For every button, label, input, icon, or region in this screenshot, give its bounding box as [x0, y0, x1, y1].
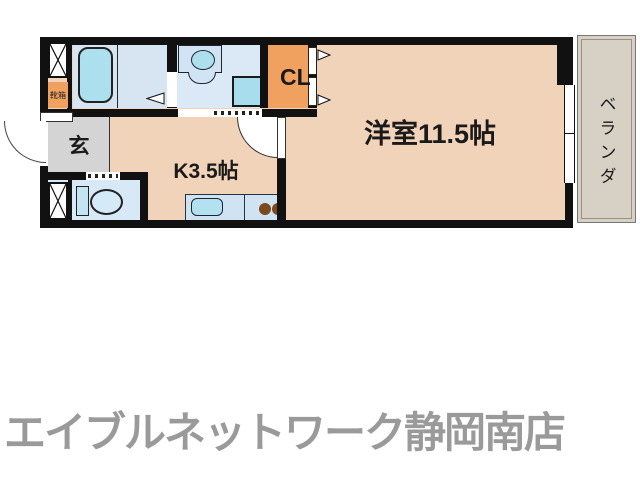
- footer-brand: エイブルネットワーク静岡南店: [4, 399, 636, 460]
- bathroom-divider-line: [117, 45, 118, 108]
- toilet-bowl-icon: [90, 189, 123, 215]
- pipe-space-icon: [48, 42, 68, 78]
- kitchen-sink-icon: [191, 198, 223, 216]
- wall-toilet-right: [140, 180, 148, 220]
- wall-top: [40, 37, 573, 45]
- wall-corner-top-right: [557, 38, 573, 85]
- closet-label-text: CL: [280, 64, 296, 90]
- closet-label: CL: [270, 50, 306, 104]
- window-center-tick: [564, 133, 575, 134]
- wall-washroom-closet: [260, 45, 268, 108]
- folding-door-arrow-icon: [317, 94, 331, 106]
- folding-door-arrow-icon: [317, 49, 331, 61]
- floor-plan-image: 靴箱 洋室11.5帖 K3.5帖 玄 CL ベランダ エイブルネットワーク静岡南…: [0, 0, 640, 480]
- wall-bottom: [40, 220, 573, 228]
- shoe-box: 靴箱: [48, 82, 68, 108]
- stove-burner-icon: [259, 203, 271, 215]
- veranda-label: ベランダ: [593, 80, 619, 206]
- washbasin-bowl-icon: [191, 50, 215, 70]
- bath-door-arrow-icon: [146, 92, 165, 105]
- bathtub-icon: [78, 47, 113, 103]
- kitchen-door-leaf: [277, 117, 286, 159]
- kitchen-label: K3.5帖: [166, 157, 246, 183]
- window: [564, 85, 575, 183]
- kitchen-counter-divider: [244, 194, 245, 221]
- living-room-label: 洋室11.5帖: [330, 113, 530, 149]
- wall-shaft-column-bottom: [68, 180, 72, 220]
- toilet-tank-icon: [76, 186, 89, 216]
- bath-door-opening: [167, 72, 177, 107]
- sliding-door-rail-icon: [88, 174, 118, 178]
- pipe-space-icon: [48, 182, 68, 220]
- door-swing-icon: [4, 121, 46, 163]
- entrance-label: 玄: [62, 130, 96, 160]
- washing-machine-icon: [232, 76, 262, 107]
- sliding-door-rail-icon: [214, 111, 262, 115]
